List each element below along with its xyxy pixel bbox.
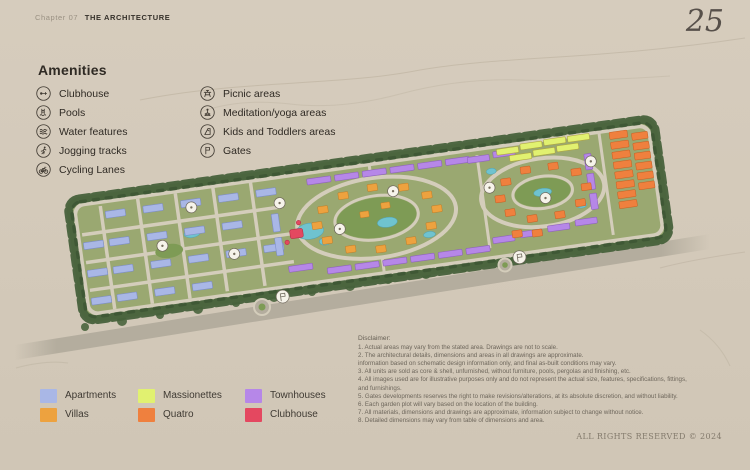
- rights-footer: ALL RIGHTS RESERVED © 2024: [576, 432, 722, 441]
- amenity-item-water-features: Water features: [36, 124, 186, 139]
- amenity-item-clubhouse: Clubhouse: [36, 86, 186, 101]
- legend-label: Clubhouse: [270, 409, 318, 420]
- apartments-swatch: [40, 389, 57, 403]
- disclaimer-title: Disclaimer:: [358, 335, 730, 343]
- legend-item-apartments: Apartments: [40, 389, 138, 403]
- amenity-item-meditation-yoga: Meditation/yoga areas: [200, 105, 335, 120]
- meditation-yoga-icon: [200, 105, 215, 120]
- legend-label: Villas: [65, 409, 89, 420]
- amenity-item-picnic-areas: Picnic areas: [200, 86, 335, 101]
- pools-icon: [36, 105, 51, 120]
- amenity-item-jogging-tracks: Jogging tracks: [36, 143, 186, 158]
- massionette-blocks: [496, 133, 591, 163]
- legend-label: Townhouses: [270, 390, 326, 401]
- amenity-label: Cycling Lanes: [59, 164, 125, 176]
- amenity-label: Kids and Toddlers areas: [223, 126, 335, 138]
- jogging-tracks-icon: [36, 143, 51, 158]
- apartments-blocks: [79, 188, 288, 306]
- amenity-label: Picnic areas: [223, 88, 280, 100]
- header: Chapter 07 THE ARCHITECTURE: [35, 13, 170, 22]
- amenity-item-cycling-lanes: Cycling Lanes: [36, 162, 186, 177]
- amenities-legend: Amenities Clubhouse Pools: [36, 62, 335, 181]
- amenity-item-kids-toddlers: Kids and Toddlers areas: [200, 124, 335, 139]
- clubhouse-building: [282, 220, 304, 245]
- clubhouse-swatch: [245, 408, 262, 422]
- amenity-label: Pools: [59, 107, 85, 119]
- legend-item-clubhouse: Clubhouse: [245, 408, 326, 422]
- page-title: THE ARCHITECTURE: [85, 13, 171, 22]
- townhouses-swatch: [245, 389, 262, 403]
- legend-label: Massionettes: [163, 390, 222, 401]
- park-greens: [152, 171, 573, 269]
- disclaimer-text: 1. Actual areas may vary from the stated…: [358, 344, 730, 425]
- villas-swatch: [40, 408, 57, 422]
- cycling-lanes-icon: [36, 162, 51, 177]
- amenity-label: Water features: [59, 126, 127, 138]
- picnic-areas-icon: [200, 86, 215, 101]
- massionettes-swatch: [138, 389, 155, 403]
- legend-label: Quatro: [163, 409, 194, 420]
- amenity-label: Jogging tracks: [59, 145, 127, 157]
- water-features-icon: [36, 124, 51, 139]
- quatro-blocks: [488, 127, 659, 241]
- villa-blocks: [307, 175, 446, 262]
- legend-item-townhouses: Townhouses: [245, 389, 326, 403]
- kids-toddlers-icon: [200, 124, 215, 139]
- quatro-swatch: [138, 408, 155, 422]
- amenity-label: Gates: [223, 145, 251, 157]
- disclaimer: Disclaimer: 1. Actual areas may vary fro…: [358, 335, 730, 425]
- amenity-label: Clubhouse: [59, 88, 109, 100]
- roundabouts: [254, 259, 512, 316]
- amenities-title: Amenities: [38, 62, 335, 78]
- page-number: 25: [686, 4, 724, 39]
- legend-label: Apartments: [65, 390, 116, 401]
- unit-type-legend: Apartments Massionettes Townhouses Villa…: [40, 386, 326, 424]
- amenity-item-gates: Gates: [200, 143, 335, 158]
- tree-row: [81, 240, 620, 331]
- amenity-item-pools: Pools: [36, 105, 186, 120]
- legend-item-massionettes: Massionettes: [138, 389, 245, 403]
- amenity-label: Meditation/yoga areas: [223, 107, 326, 119]
- legend-item-villas: Villas: [40, 408, 138, 422]
- gates-icon: [200, 143, 215, 158]
- chapter-label: Chapter 07: [35, 13, 78, 22]
- brochure-page: Chapter 07 THE ARCHITECTURE 25: [0, 0, 750, 470]
- gate-markers: [274, 250, 527, 304]
- legend-item-quatro: Quatro: [138, 408, 245, 422]
- clubhouse-icon: [36, 86, 51, 101]
